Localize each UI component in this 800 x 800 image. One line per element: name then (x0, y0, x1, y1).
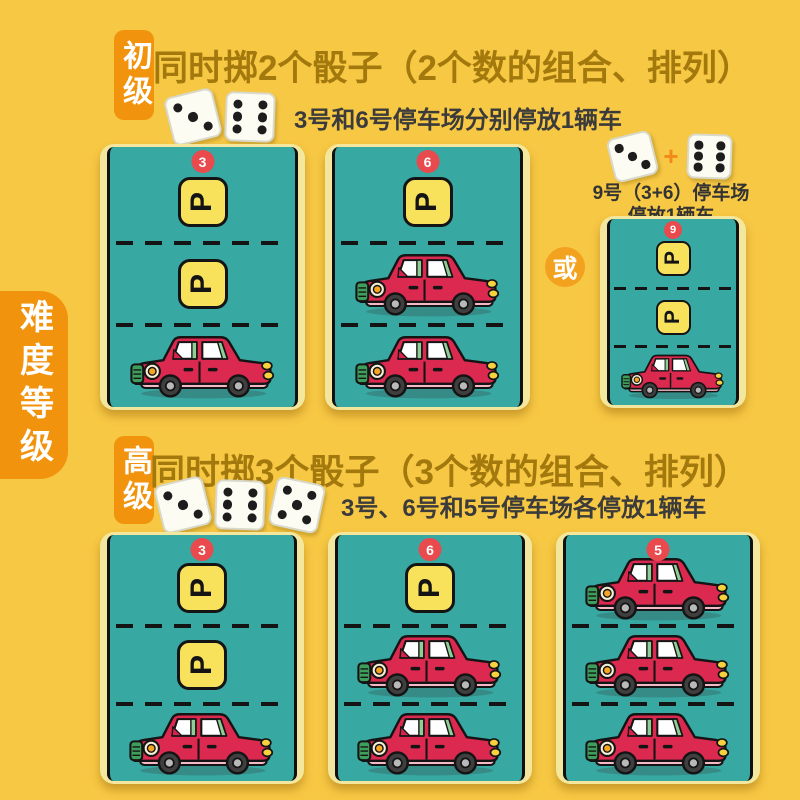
parking-sign: P (177, 563, 227, 613)
die-3-icon (606, 129, 661, 184)
parking-lot-surface: PP (107, 147, 298, 407)
die-3-icon (153, 475, 214, 536)
parking-sign: P (178, 259, 228, 309)
plus-sign: + (663, 141, 678, 172)
die-6-icon (224, 91, 276, 143)
parking-card-3: 3PP (100, 144, 305, 410)
parking-lane (338, 704, 522, 781)
or-badge: 或 (545, 247, 585, 287)
parking-sign: P (403, 177, 453, 227)
parking-lane: P (110, 626, 294, 703)
parking-lane (566, 626, 750, 703)
parking-lot-surface: P (335, 535, 525, 781)
parking-lane (335, 325, 520, 407)
die-6-icon (686, 133, 733, 180)
car-illustration (355, 249, 501, 319)
parking-sign: P (177, 640, 227, 690)
difficulty-ribbon: 难度等级 (0, 291, 68, 479)
lot-number-badge: 9 (664, 221, 682, 239)
dice-group (168, 92, 275, 142)
parking-sign: P (178, 177, 228, 227)
alt-dice-row: + (610, 134, 731, 179)
parking-lane: P (110, 243, 295, 325)
section2-instruction: 3号、6号和5号停车场各停放1辆车 (341, 488, 706, 523)
parking-sign-letter: P (185, 655, 219, 675)
parking-sign: P (656, 300, 691, 335)
parking-sign: P (656, 241, 691, 276)
section2-dice-row: 3号、6号和5号停车场各停放1辆车 (158, 480, 706, 530)
lot-number-badge: 6 (419, 538, 442, 561)
parking-lane (110, 325, 295, 407)
level-badge-advanced: 高级 (114, 436, 154, 524)
car-illustration (357, 630, 503, 700)
parking-lane (610, 346, 736, 405)
parking-sign-letter: P (185, 274, 219, 294)
difficulty-levels-poster: 难度等级 初级 同时掷2个骰子（2个数的组合、排列） 3号和6号停车场分别停放1… (0, 0, 800, 800)
parking-sign: P (405, 563, 455, 613)
parking-lot-surface: PP (107, 535, 297, 781)
alt-die-first: + (610, 134, 731, 179)
alternative-column: + 9号（3+6）停车场 停放1辆车 (576, 134, 766, 228)
alt-caption-line1: 9号（3+6）停车场 (593, 182, 750, 205)
parking-lot-surface: P (332, 147, 523, 407)
car-illustration (585, 553, 731, 623)
lot-number-badge: 3 (191, 538, 214, 561)
die-3-icon (163, 87, 224, 148)
section1-dice-row: 3号和6号停车场分别停放1辆车 (168, 92, 622, 142)
level-badge-beginner-label: 初级 (112, 40, 156, 110)
parking-sign-letter: P (413, 578, 447, 598)
parking-card-6-advanced: 6P (328, 532, 532, 784)
parking-sign-letter: P (661, 251, 685, 265)
lot-number-badge: 6 (416, 150, 439, 173)
parking-lane (110, 704, 294, 781)
parking-sign-letter: P (185, 192, 219, 212)
car-illustration (585, 630, 731, 700)
parking-card-5-advanced: 5 (556, 532, 760, 784)
parking-lane (338, 626, 522, 703)
parking-sign-letter: P (410, 192, 444, 212)
level-badge-beginner: 初级 (114, 30, 154, 120)
parking-sign-letter: P (185, 578, 219, 598)
parking-card-9: 9PP (600, 216, 746, 408)
parking-lot-surface: PP (607, 219, 739, 405)
lot-number-badge: 5 (647, 538, 670, 561)
parking-card-6: 6P (325, 144, 530, 410)
difficulty-ribbon-label: 难度等级 (10, 299, 59, 471)
lot-number-badge: 3 (191, 150, 214, 173)
car-illustration (129, 708, 275, 778)
car-illustration (621, 351, 725, 401)
parking-lane: P (610, 288, 736, 347)
car-illustration (130, 331, 276, 401)
parking-lane (335, 243, 520, 325)
die-6-icon (214, 479, 266, 531)
die-5-icon (267, 475, 326, 534)
parking-lane (566, 704, 750, 781)
section1-title: 同时掷2个骰子（2个数的组合、排列） (153, 40, 752, 91)
parking-card-3-advanced: 3PP (100, 532, 304, 784)
section1-instruction: 3号和6号停车场分别停放1辆车 (294, 100, 622, 135)
car-illustration (585, 708, 731, 778)
dice-group (158, 480, 322, 530)
parking-lot-surface (563, 535, 753, 781)
parking-sign-letter: P (661, 310, 685, 324)
car-illustration (357, 708, 503, 778)
car-illustration (355, 331, 501, 401)
